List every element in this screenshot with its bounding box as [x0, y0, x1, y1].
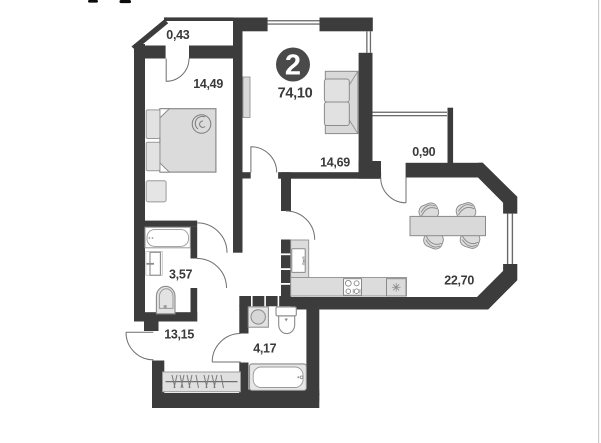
svg-text:22,70: 22,70: [444, 274, 474, 288]
svg-text:0,90: 0,90: [412, 145, 435, 159]
svg-text:3,57: 3,57: [169, 267, 192, 281]
svg-text:13,15: 13,15: [164, 328, 194, 342]
svg-text:74,10: 74,10: [278, 85, 313, 101]
svg-text:0,43: 0,43: [166, 28, 189, 42]
svg-text:2: 2: [285, 50, 301, 82]
svg-text:14,49: 14,49: [193, 77, 223, 91]
svg-text:4,17: 4,17: [253, 341, 276, 355]
svg-text:14,69: 14,69: [320, 155, 350, 169]
